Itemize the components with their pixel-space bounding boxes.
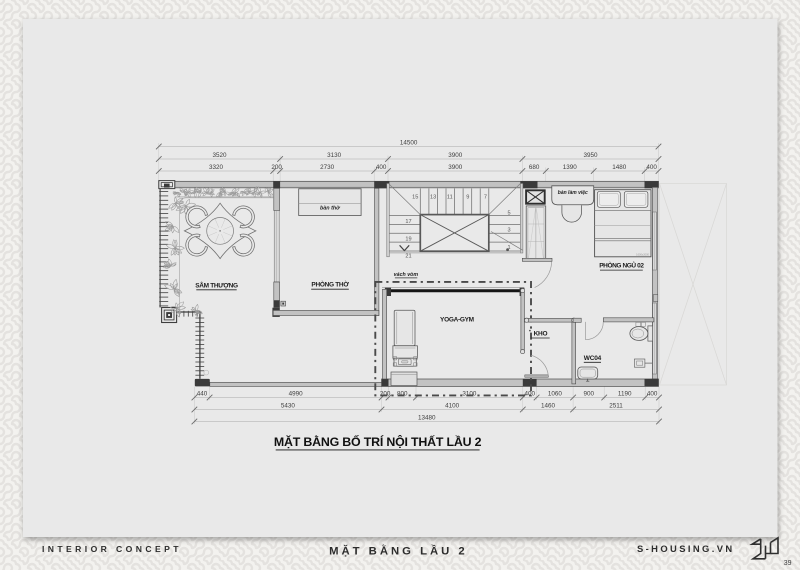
svg-text:3320: 3320 xyxy=(209,164,224,171)
svg-text:9: 9 xyxy=(466,195,469,201)
svg-text:1460: 1460 xyxy=(541,402,556,409)
svg-text:3: 3 xyxy=(508,227,511,233)
svg-text:KHO: KHO xyxy=(534,331,548,338)
svg-text:39: 39 xyxy=(784,560,792,567)
svg-text:440: 440 xyxy=(197,390,208,397)
svg-text:PHÒNG NGỦ 02: PHÒNG NGỦ 02 xyxy=(599,261,644,270)
svg-text:13: 13 xyxy=(430,195,436,201)
svg-text:15: 15 xyxy=(412,195,418,201)
svg-text:3900: 3900 xyxy=(448,152,463,159)
svg-text:1480: 1480 xyxy=(612,164,627,171)
svg-text:1060: 1060 xyxy=(548,390,563,397)
svg-text:YOGA-GYM: YOGA-GYM xyxy=(440,316,474,323)
svg-text:1390: 1390 xyxy=(563,164,578,171)
svg-text:1190: 1190 xyxy=(618,390,632,397)
svg-text:3950: 3950 xyxy=(583,152,598,159)
svg-text:MẶT BẰNG LẦU 2: MẶT BẰNG LẦU 2 xyxy=(329,545,468,558)
svg-text:INTERIOR CONCEPT: INTERIOR CONCEPT xyxy=(42,544,182,554)
svg-text:400: 400 xyxy=(646,164,657,171)
svg-text:13480: 13480 xyxy=(418,414,436,421)
svg-text:PHÒNG THỜ: PHÒNG THỜ xyxy=(311,280,349,289)
svg-text:3520: 3520 xyxy=(212,152,227,159)
svg-text:bàn thờ: bàn thờ xyxy=(320,206,341,212)
svg-text:900: 900 xyxy=(583,390,594,397)
svg-text:4100: 4100 xyxy=(445,402,460,409)
svg-text:7: 7 xyxy=(484,195,487,201)
svg-text:680: 680 xyxy=(529,164,540,171)
svg-text:S-HOUSING.VN: S-HOUSING.VN xyxy=(637,543,735,554)
svg-text:MẶT BẰNG BỐ TRÍ NỘI THẤT LẦU: MẶT BẰNG BỐ TRÍ NỘI THẤT LẦU 2 xyxy=(274,434,482,449)
svg-text:1: 1 xyxy=(508,245,511,251)
svg-text:11: 11 xyxy=(447,195,453,201)
svg-text:bàn làm việc: bàn làm việc xyxy=(558,190,588,196)
svg-text:5: 5 xyxy=(508,210,511,216)
svg-text:400: 400 xyxy=(376,164,387,171)
svg-text:3130: 3130 xyxy=(327,152,342,159)
svg-text:vách vòm: vách vòm xyxy=(394,272,419,278)
svg-text:3900: 3900 xyxy=(448,164,463,171)
svg-text:400: 400 xyxy=(647,390,658,397)
svg-text:WC04: WC04 xyxy=(584,355,602,362)
svg-text:19: 19 xyxy=(405,237,411,243)
svg-text:SÂM THƯỢNG: SÂM THƯỢNG xyxy=(195,281,238,290)
svg-text:2730: 2730 xyxy=(320,164,335,171)
svg-text:21: 21 xyxy=(405,254,411,260)
svg-text:1600x2000: 1600x2000 xyxy=(636,252,649,256)
svg-text:200: 200 xyxy=(271,164,282,171)
svg-text:14500: 14500 xyxy=(400,139,418,146)
svg-text:17: 17 xyxy=(405,219,411,225)
svg-text:2511: 2511 xyxy=(609,402,623,409)
svg-text:4990: 4990 xyxy=(289,390,304,397)
svg-text:5430: 5430 xyxy=(281,402,296,409)
